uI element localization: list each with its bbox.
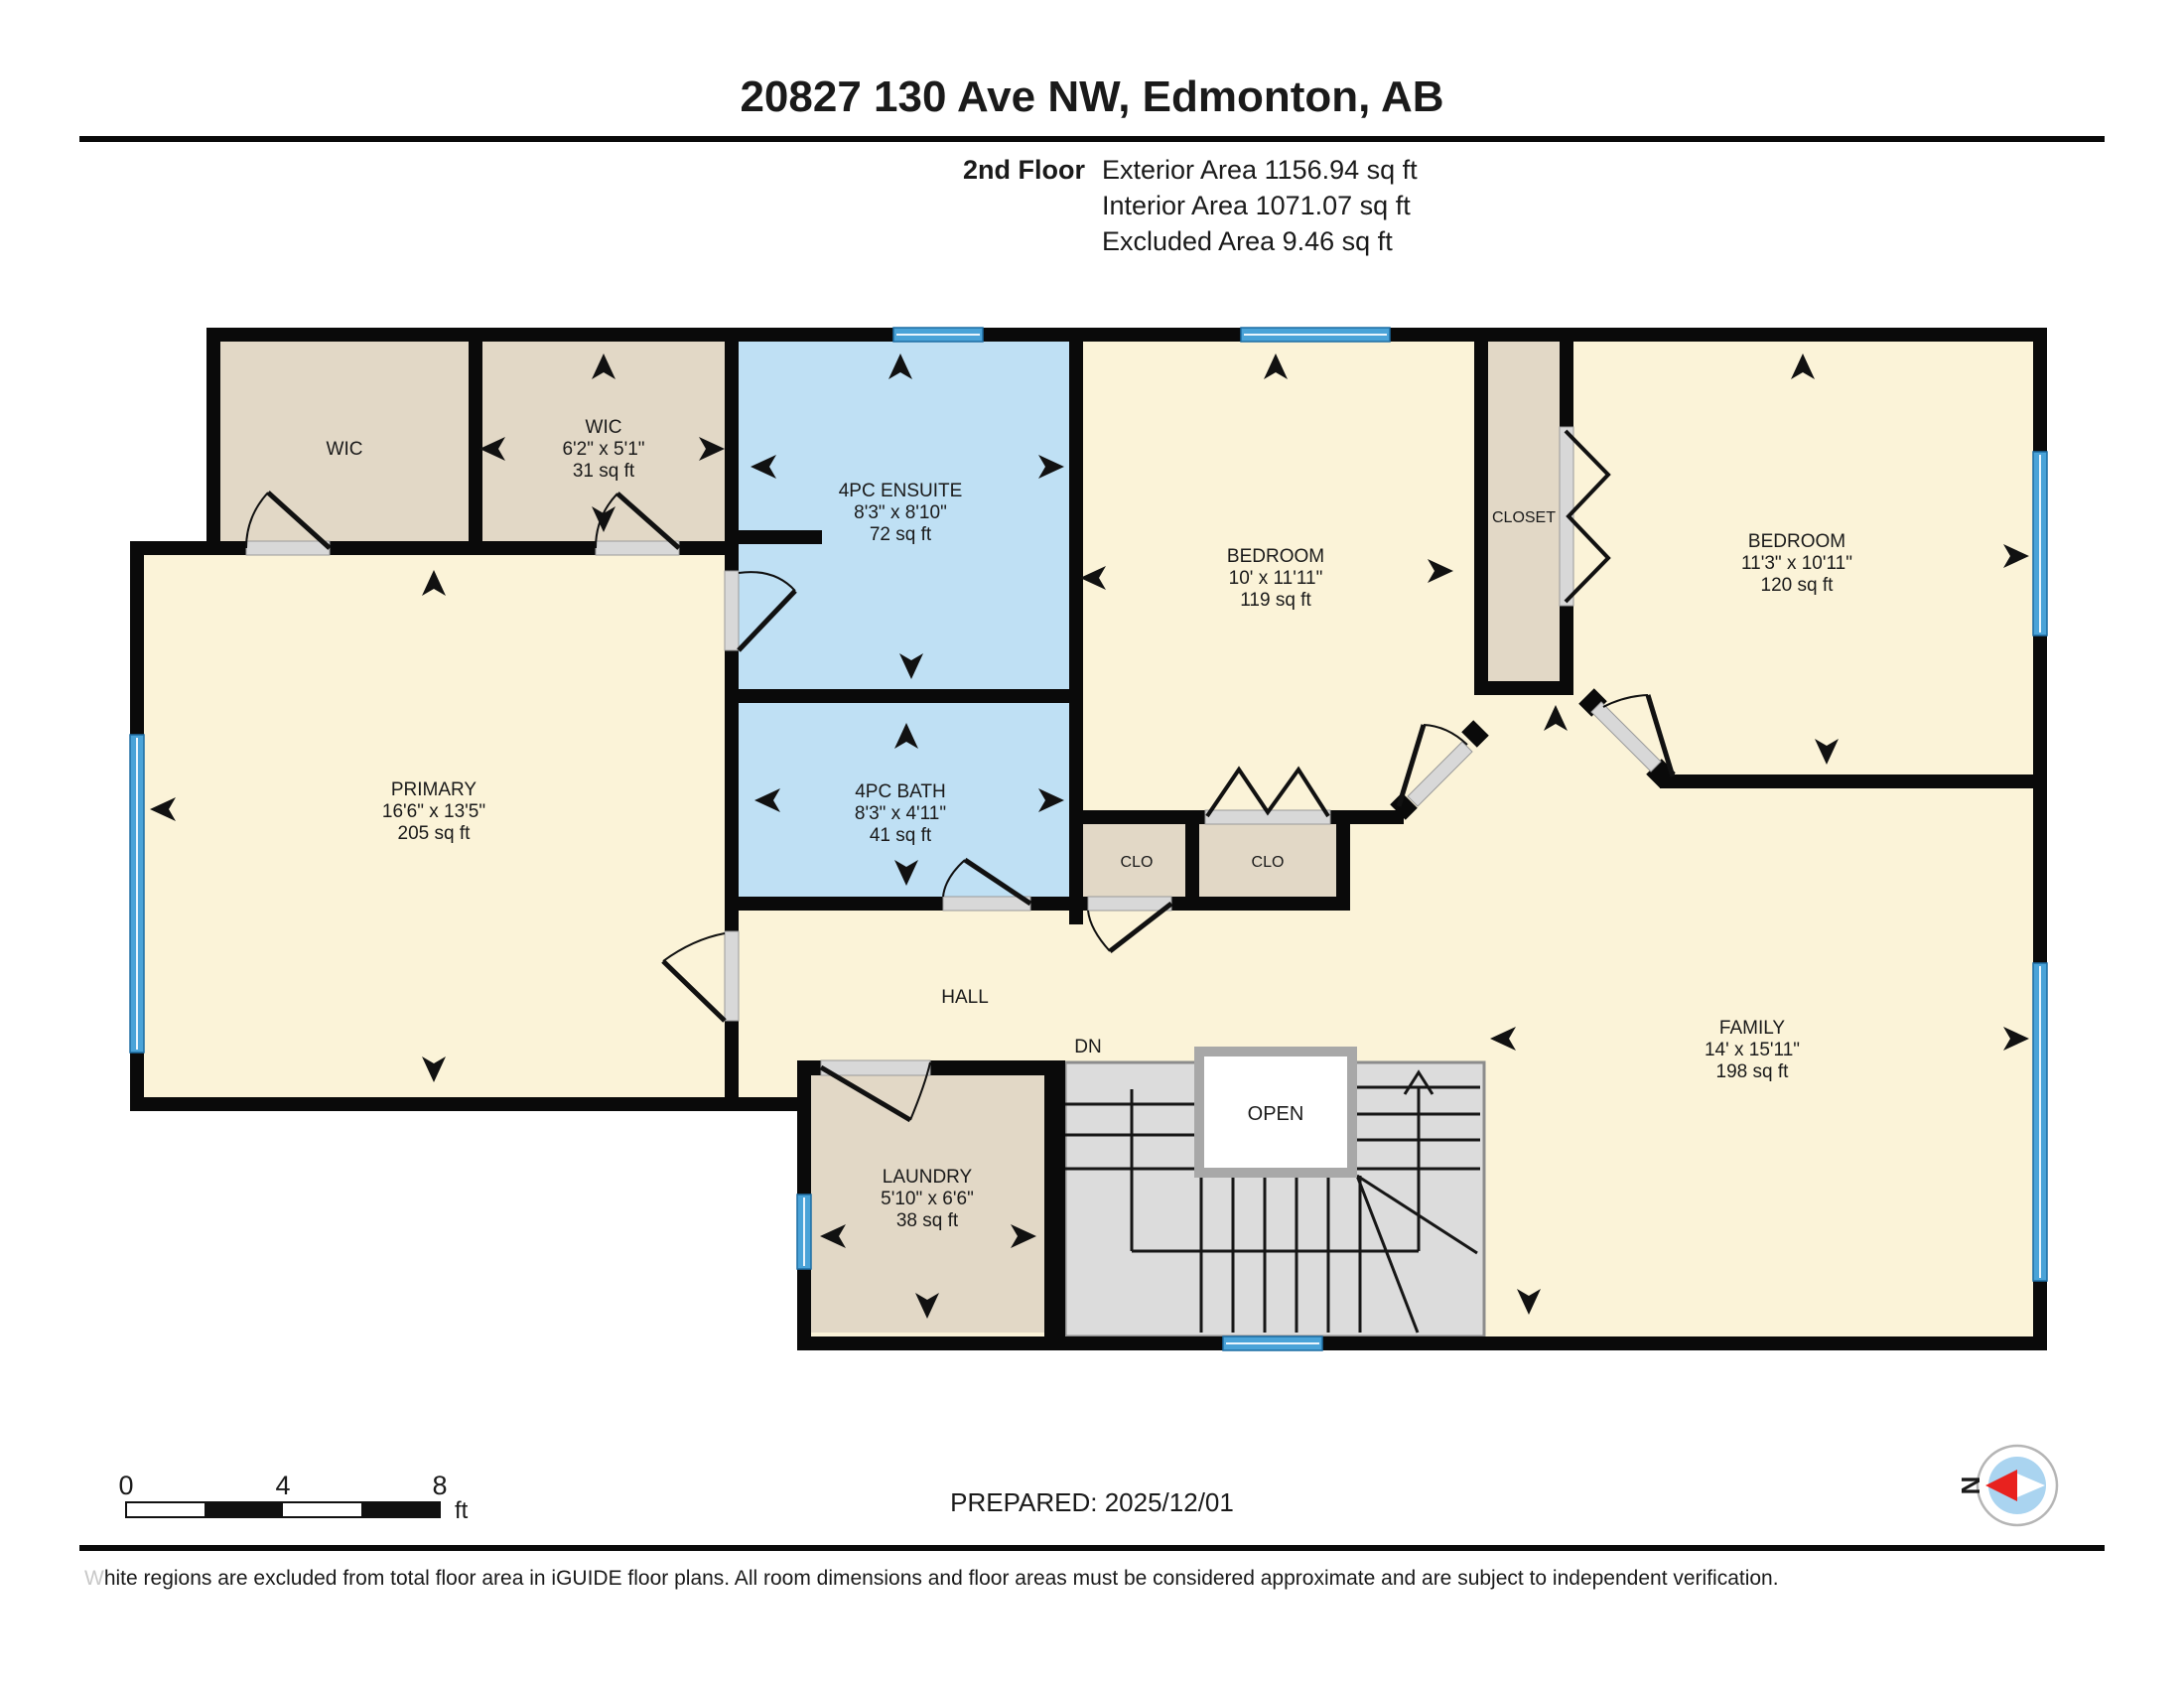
room-area-bedroom1: 119 sq ft <box>1240 590 1311 611</box>
room-dims-bath: 8'3" x 4'11" <box>855 803 946 824</box>
room-area-primary: 205 sq ft <box>398 823 472 844</box>
page-title: 20827 130 Ave NW, Edmonton, AB <box>740 72 1443 121</box>
scale-tick-8: 8 <box>432 1471 447 1500</box>
scale-unit: ft <box>455 1497 469 1524</box>
room-label-laundry: LAUNDRY <box>883 1167 973 1188</box>
floor-label: 2nd Floor <box>963 155 1085 185</box>
exterior-area: Exterior Area 1156.94 sq ft <box>1102 155 1418 185</box>
excluded-area: Excluded Area 9.46 sq ft <box>1102 226 1393 256</box>
room-label-wic1: WIC <box>327 439 363 460</box>
stairs-down-label: DN <box>1074 1037 1101 1057</box>
room-area-family: 198 sq ft <box>1716 1061 1790 1082</box>
floorplan-page: 20827 130 Ave NW, Edmonton, AB 2nd Floor… <box>0 0 2184 1688</box>
stairs-open-label: OPEN <box>1248 1103 1304 1125</box>
compass: N <box>1956 1446 2057 1525</box>
room-label-wic2: WIC <box>586 417 622 438</box>
room-label-bedroom2: BEDROOM <box>1748 531 1845 552</box>
room-label-bedroom1: BEDROOM <box>1227 546 1324 567</box>
room-area-bedroom2: 120 sq ft <box>1761 575 1835 596</box>
room-label-ensuite: 4PC ENSUITE <box>839 481 963 501</box>
room-dims-bedroom1: 10' x 11'11" <box>1229 568 1323 589</box>
compass-north-label: N <box>1956 1477 1985 1495</box>
room-area-laundry: 38 sq ft <box>896 1210 959 1231</box>
disclaimer-first-letter: W <box>84 1567 104 1590</box>
floorplan-canvas: 20827 130 Ave NW, Edmonton, AB 2nd Floor… <box>0 0 2184 1688</box>
room-area-ensuite: 72 sq ft <box>870 524 932 545</box>
room-dims-bedroom2: 11'3" x 10'11" <box>1741 553 1852 574</box>
scale-tick-4: 4 <box>275 1471 290 1500</box>
disclaimer-text: hite regions are excluded from total flo… <box>104 1567 1779 1590</box>
room-label-hall: HALL <box>941 987 989 1008</box>
disclaimer: White regions are excluded from total fl… <box>84 1567 1779 1590</box>
room-dims-laundry: 5'10" x 6'6" <box>881 1189 974 1209</box>
room-label-bath: 4PC BATH <box>855 781 946 802</box>
floorplan: WIC WIC 6'2" x 5'1" 31 sq ft 4PC ENSUITE… <box>130 328 2047 1350</box>
room-dims-family: 14' x 15'11" <box>1705 1040 1800 1060</box>
room-label-family: FAMILY <box>1719 1018 1785 1039</box>
room-label-clo1: CLO <box>1121 854 1154 871</box>
room-label-closet: CLOSET <box>1492 509 1556 526</box>
room-dims-wic2: 6'2" x 5'1" <box>562 439 644 460</box>
scale-tick-0: 0 <box>118 1471 133 1500</box>
room-area-bath: 41 sq ft <box>870 825 932 846</box>
interior-area: Interior Area 1071.07 sq ft <box>1102 191 1411 220</box>
room-dims-ensuite: 8'3" x 8'10" <box>854 502 947 523</box>
room-area-wic2: 31 sq ft <box>573 461 635 482</box>
footer-rule <box>79 1545 2105 1551</box>
scale-bar: 0 4 8 ft <box>118 1471 468 1524</box>
prepared-date: PREPARED: 2025/12/01 <box>950 1487 1234 1517</box>
room-dims-primary: 16'6" x 13'5" <box>382 801 485 822</box>
room-label-primary: PRIMARY <box>391 779 478 800</box>
header-rule <box>79 136 2105 142</box>
room-label-clo2: CLO <box>1252 854 1285 871</box>
